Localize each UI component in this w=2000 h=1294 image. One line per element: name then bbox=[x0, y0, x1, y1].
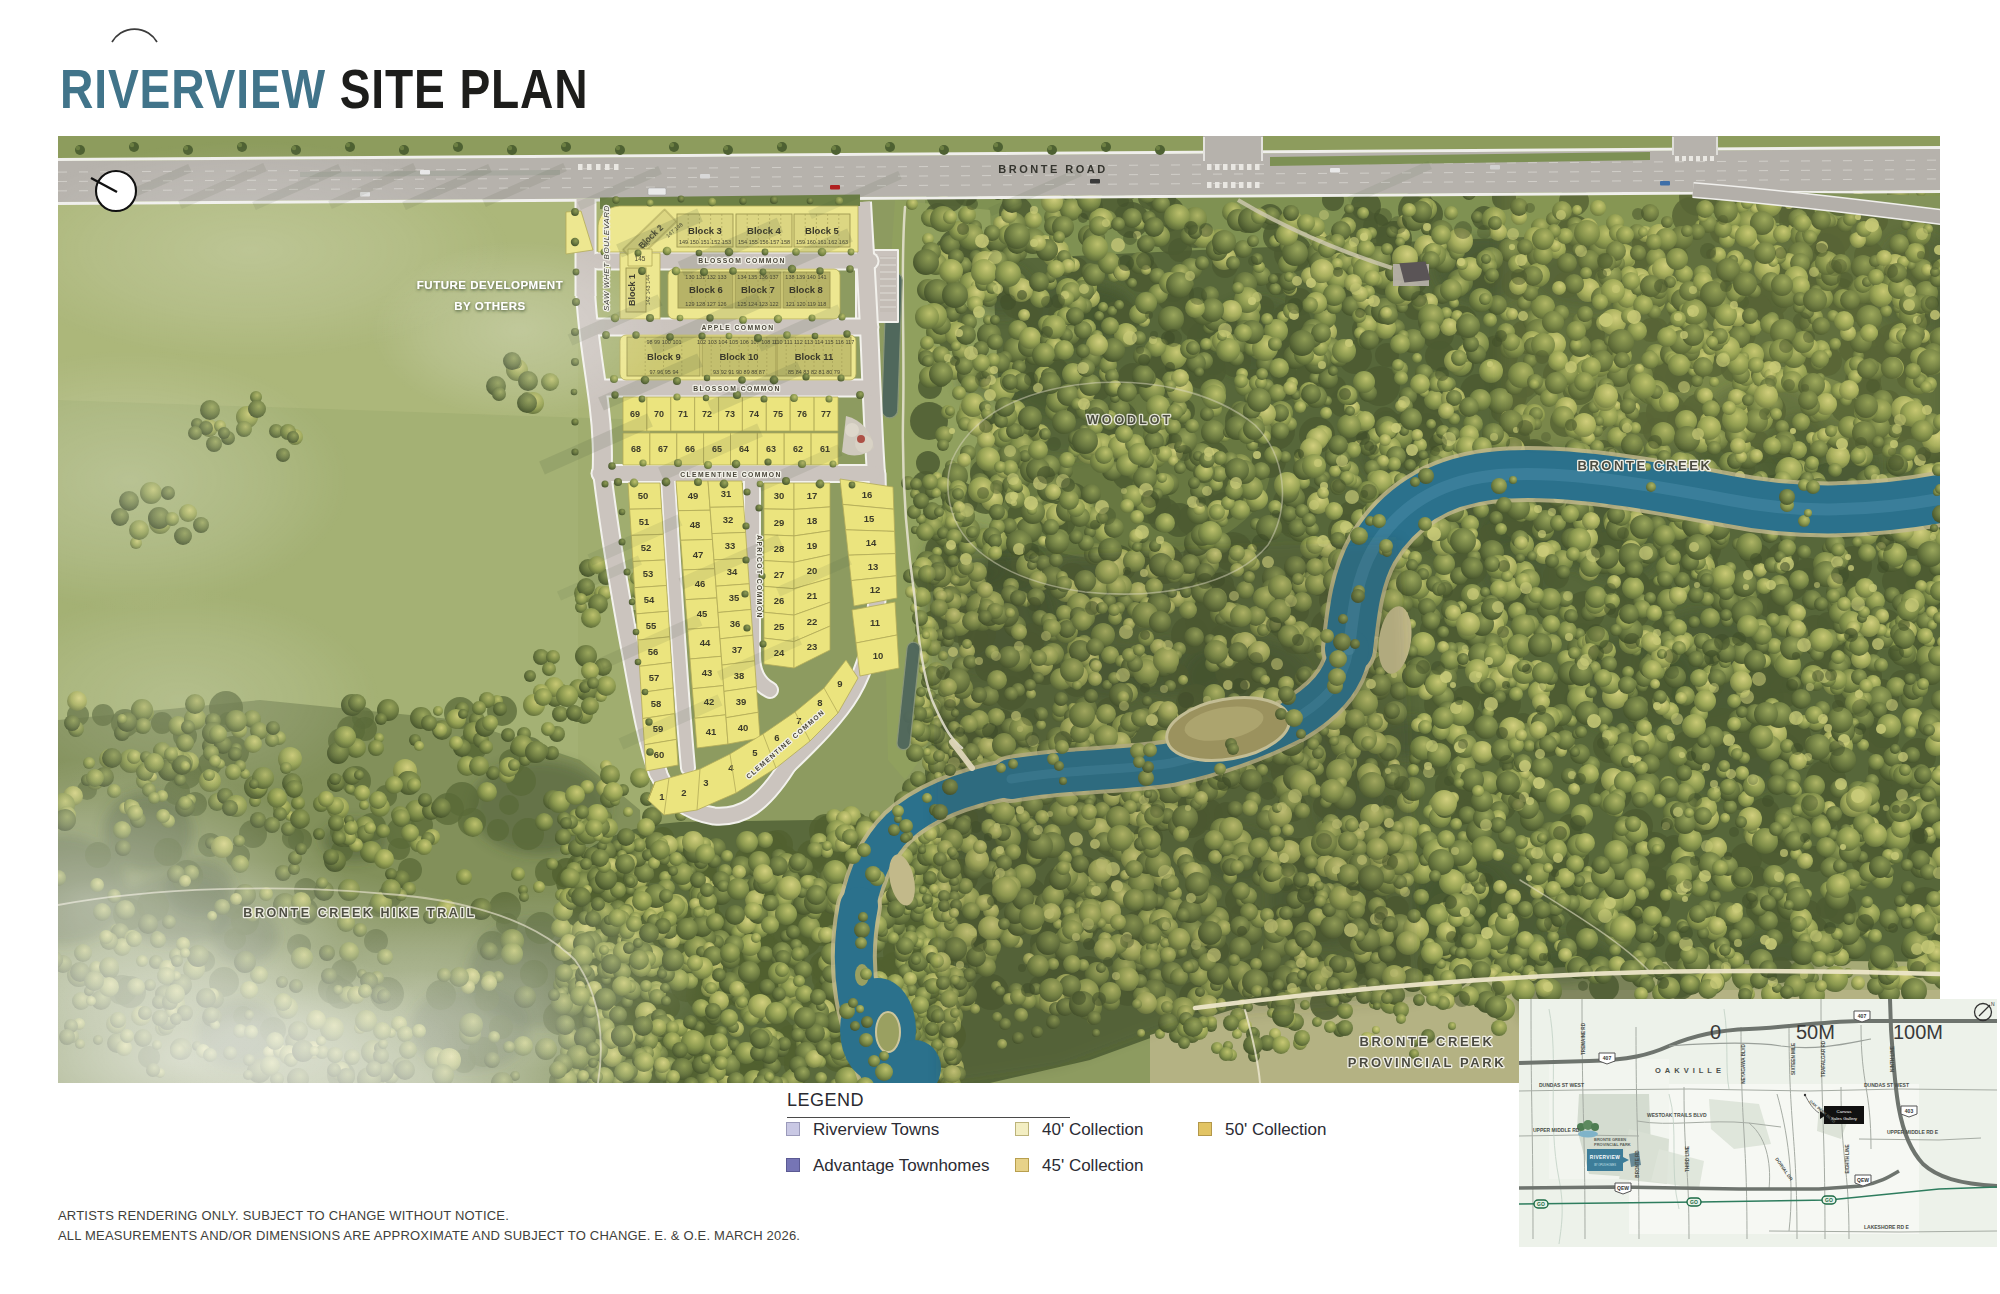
svg-text:26: 26 bbox=[774, 595, 785, 606]
svg-text:11: 11 bbox=[870, 617, 881, 628]
svg-text:WESTOAK TRAILS BLVD: WESTOAK TRAILS BLVD bbox=[1647, 1112, 1707, 1118]
svg-text:Block 7: Block 7 bbox=[741, 284, 775, 295]
svg-text:145: 145 bbox=[635, 255, 646, 262]
svg-text:31: 31 bbox=[721, 488, 732, 499]
svg-text:BRONTE CREEK HIKE TRAIL: BRONTE CREEK HIKE TRAIL bbox=[243, 906, 476, 920]
svg-text:Block 10: Block 10 bbox=[719, 351, 758, 362]
svg-text:OAKVILLE: OAKVILLE bbox=[1655, 1066, 1725, 1075]
svg-text:52: 52 bbox=[641, 542, 652, 553]
svg-text:RIVERVIEW: RIVERVIEW bbox=[1590, 1155, 1621, 1160]
svg-text:5: 5 bbox=[752, 747, 758, 758]
svg-text:27: 27 bbox=[774, 569, 785, 580]
svg-text:43: 43 bbox=[702, 667, 713, 678]
svg-text:58: 58 bbox=[651, 698, 662, 709]
svg-text:BY OPUS HOMES: BY OPUS HOMES bbox=[1594, 1163, 1616, 1167]
svg-text:PROVINCIAL PARK: PROVINCIAL PARK bbox=[1348, 1055, 1506, 1070]
svg-text:3: 3 bbox=[703, 777, 708, 788]
svg-text:BY OTHERS: BY OTHERS bbox=[454, 300, 525, 312]
svg-text:SIXTEEN MILE: SIXTEEN MILE bbox=[1791, 1043, 1796, 1075]
svg-text:UPPER MIDDLE RD.: UPPER MIDDLE RD. bbox=[1533, 1127, 1581, 1133]
svg-text:25: 25 bbox=[774, 621, 785, 632]
svg-text:10: 10 bbox=[873, 650, 884, 661]
svg-text:GO: GO bbox=[1825, 1197, 1833, 1203]
svg-text:50: 50 bbox=[638, 490, 649, 501]
svg-text:13: 13 bbox=[868, 561, 879, 572]
svg-text:407: 407 bbox=[1858, 1013, 1867, 1019]
svg-text:BRONTE CREEK: BRONTE CREEK bbox=[1577, 458, 1712, 473]
svg-text:Block 8: Block 8 bbox=[789, 284, 823, 295]
svg-text:TREMAINE RD: TREMAINE RD bbox=[1581, 1022, 1586, 1055]
svg-text:71: 71 bbox=[678, 409, 688, 419]
svg-text:PROVINCIAL PARK: PROVINCIAL PARK bbox=[1594, 1142, 1631, 1147]
svg-text:403: 403 bbox=[1905, 1108, 1914, 1114]
svg-text:Block 11: Block 11 bbox=[795, 351, 834, 362]
svg-text:47: 47 bbox=[693, 549, 704, 560]
svg-text:QEW: QEW bbox=[1617, 1185, 1629, 1191]
svg-text:138 139 140 141: 138 139 140 141 bbox=[785, 274, 826, 280]
svg-text:WOODLOT: WOODLOT bbox=[1087, 413, 1173, 427]
svg-text:50M: 50M bbox=[1796, 1021, 1835, 1043]
svg-text:0: 0 bbox=[1710, 1021, 1721, 1043]
svg-text:LAKESHORE RD E: LAKESHORE RD E bbox=[1864, 1224, 1909, 1230]
svg-text:36: 36 bbox=[730, 618, 741, 629]
svg-text:62: 62 bbox=[793, 444, 803, 454]
svg-text:BLOSSOM COMMON: BLOSSOM COMMON bbox=[698, 257, 786, 264]
svg-text:GO: GO bbox=[1690, 1199, 1698, 1205]
svg-text:Block 6: Block 6 bbox=[689, 284, 723, 295]
svg-text:29: 29 bbox=[774, 517, 785, 528]
svg-text:22: 22 bbox=[807, 616, 818, 627]
svg-text:N: N bbox=[1991, 1001, 1995, 1007]
svg-text:21: 21 bbox=[807, 590, 818, 601]
svg-text:APPLE COMMON: APPLE COMMON bbox=[701, 324, 774, 331]
svg-text:55: 55 bbox=[646, 620, 657, 631]
svg-text:70: 70 bbox=[654, 409, 664, 419]
svg-text:6: 6 bbox=[774, 732, 779, 743]
svg-text:NINTH LINE: NINTH LINE bbox=[1890, 1046, 1895, 1072]
svg-text:BRONTE RD: BRONTE RD bbox=[1635, 1150, 1640, 1178]
svg-text:57: 57 bbox=[649, 672, 660, 683]
svg-text:100M: 100M bbox=[1893, 1021, 1943, 1043]
svg-text:NEYAGAWA BLVD: NEYAGAWA BLVD bbox=[1741, 1043, 1746, 1083]
svg-text:67: 67 bbox=[658, 444, 668, 454]
svg-text:QEW: QEW bbox=[1857, 1177, 1869, 1183]
svg-text:16: 16 bbox=[862, 489, 873, 500]
svg-text:73: 73 bbox=[725, 409, 735, 419]
svg-text:74: 74 bbox=[749, 409, 759, 419]
svg-text:77: 77 bbox=[821, 409, 831, 419]
svg-text:18: 18 bbox=[807, 515, 818, 526]
svg-text:DUNDAS ST WEST: DUNDAS ST WEST bbox=[1539, 1082, 1584, 1088]
svg-text:CLEMENTINE COMMON: CLEMENTINE COMMON bbox=[680, 471, 782, 478]
svg-text:BLOSSOM COMMON: BLOSSOM COMMON bbox=[693, 385, 781, 392]
svg-text:54: 54 bbox=[644, 594, 655, 605]
svg-text:TRAFALGAR RD: TRAFALGAR RD bbox=[1821, 1040, 1826, 1077]
svg-text:GO: GO bbox=[1537, 1201, 1545, 1207]
svg-text:THIRD LINE: THIRD LINE bbox=[1685, 1146, 1690, 1172]
svg-text:49: 49 bbox=[688, 490, 699, 501]
svg-text:93 92 91 90 89 88 87: 93 92 91 90 89 88 87 bbox=[713, 369, 765, 375]
svg-text:17: 17 bbox=[807, 490, 818, 501]
svg-text:72: 72 bbox=[702, 409, 712, 419]
svg-text:53: 53 bbox=[643, 568, 654, 579]
svg-text:APRICOT COMMON: APRICOT COMMON bbox=[756, 535, 763, 619]
svg-text:2: 2 bbox=[681, 787, 686, 798]
svg-text:44: 44 bbox=[700, 637, 711, 648]
svg-text:UPPER MIDDLE RD E: UPPER MIDDLE RD E bbox=[1887, 1129, 1939, 1135]
svg-text:63: 63 bbox=[766, 444, 776, 454]
svg-text:37: 37 bbox=[732, 644, 743, 655]
svg-text:12: 12 bbox=[870, 584, 881, 595]
svg-text:121 120 119 118: 121 120 119 118 bbox=[786, 301, 826, 307]
svg-text:FUTURE DEVELOPMENT: FUTURE DEVELOPMENT bbox=[417, 279, 563, 291]
svg-text:76: 76 bbox=[797, 409, 807, 419]
svg-text:60: 60 bbox=[654, 749, 665, 760]
svg-text:41: 41 bbox=[706, 726, 717, 737]
svg-text:48: 48 bbox=[690, 519, 701, 530]
svg-text:32: 32 bbox=[723, 514, 734, 525]
svg-text:SAW WHET BOULEVARD: SAW WHET BOULEVARD bbox=[602, 205, 611, 311]
svg-text:1: 1 bbox=[659, 791, 665, 802]
svg-text:35: 35 bbox=[729, 592, 740, 603]
svg-text:8: 8 bbox=[817, 697, 822, 708]
svg-text:51: 51 bbox=[639, 516, 650, 527]
svg-text:407: 407 bbox=[1603, 1055, 1612, 1061]
svg-text:75: 75 bbox=[773, 409, 783, 419]
svg-text:Block 3: Block 3 bbox=[688, 225, 722, 236]
svg-text:DUNDAS ST WEST: DUNDAS ST WEST bbox=[1864, 1082, 1909, 1088]
svg-text:EIGHTH LINE: EIGHTH LINE bbox=[1845, 1144, 1850, 1173]
svg-text:23: 23 bbox=[807, 641, 818, 652]
svg-text:BRONTE ROAD: BRONTE ROAD bbox=[998, 163, 1107, 175]
svg-text:68: 68 bbox=[631, 444, 641, 454]
svg-text:129 128 127 126: 129 128 127 126 bbox=[685, 301, 726, 307]
svg-text:40: 40 bbox=[738, 722, 749, 733]
svg-text:Canvas: Canvas bbox=[1837, 1109, 1853, 1114]
svg-text:39: 39 bbox=[736, 696, 747, 707]
svg-text:15: 15 bbox=[864, 513, 875, 524]
svg-text:30: 30 bbox=[774, 490, 785, 501]
svg-text:9: 9 bbox=[837, 678, 842, 689]
svg-text:BRONTE CREEK: BRONTE CREEK bbox=[1359, 1034, 1494, 1049]
svg-text:33: 33 bbox=[725, 540, 736, 551]
svg-text:19: 19 bbox=[807, 540, 818, 551]
svg-text:14: 14 bbox=[866, 537, 877, 548]
